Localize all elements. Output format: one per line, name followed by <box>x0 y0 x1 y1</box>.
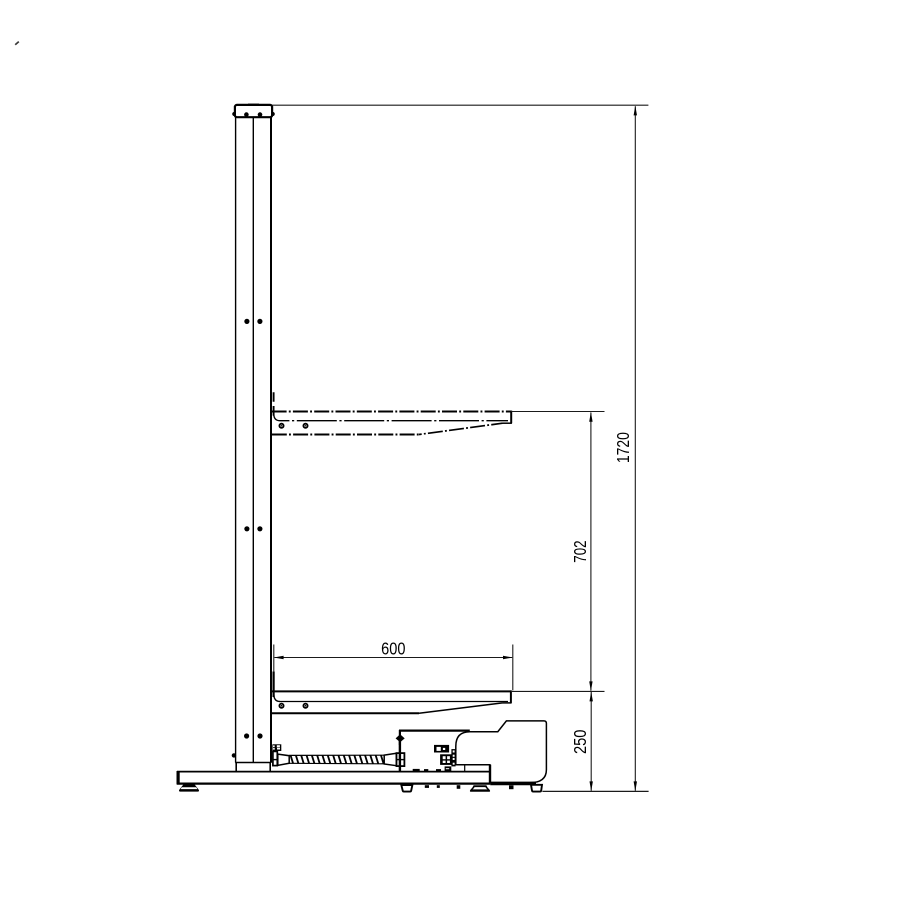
svg-text:702: 702 <box>570 540 590 562</box>
svg-text:250: 250 <box>570 729 590 754</box>
svg-text:1720: 1720 <box>613 432 633 463</box>
svg-text:600: 600 <box>381 639 406 659</box>
